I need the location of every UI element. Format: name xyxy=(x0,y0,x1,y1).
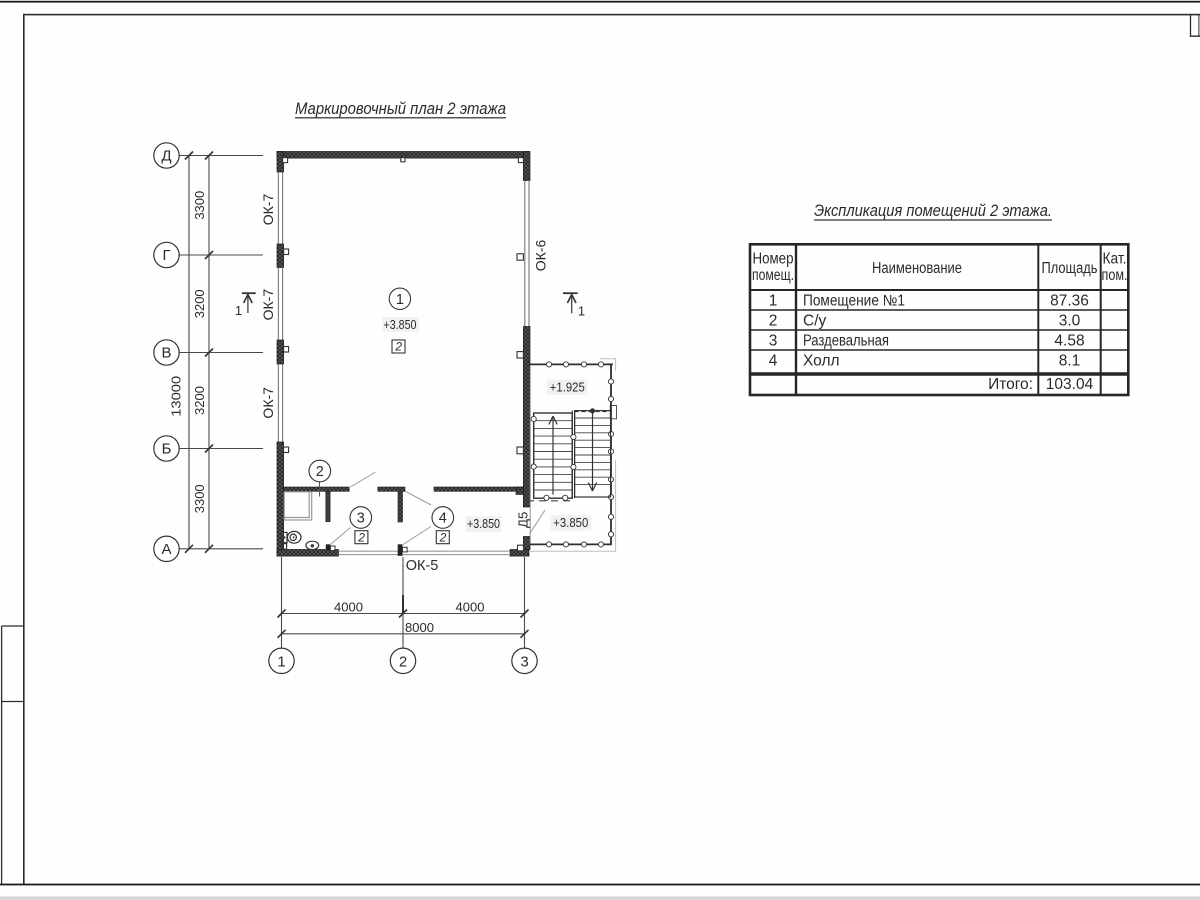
svg-text:ОК-7: ОК-7 xyxy=(260,387,276,419)
svg-text:Маркировочный план 2 этажа: Маркировочный план 2 этажа xyxy=(295,99,506,118)
svg-text:4000: 4000 xyxy=(334,600,363,615)
svg-text:8000: 8000 xyxy=(405,620,434,635)
svg-text:2: 2 xyxy=(769,313,778,330)
svg-text:ОК-7: ОК-7 xyxy=(260,194,276,226)
svg-text:4.58: 4.58 xyxy=(1054,333,1084,350)
svg-text:13000: 13000 xyxy=(169,376,184,417)
svg-text:4: 4 xyxy=(439,511,447,527)
svg-text:8.1: 8.1 xyxy=(1059,353,1081,370)
svg-text:1: 1 xyxy=(769,293,778,310)
svg-text:ОК-7: ОК-7 xyxy=(260,289,276,321)
svg-text:Д: Д xyxy=(161,148,171,165)
svg-text:помещ.: помещ. xyxy=(752,267,794,284)
svg-text:+3.850: +3.850 xyxy=(384,317,417,332)
svg-text:Кат.: Кат. xyxy=(1103,251,1127,268)
svg-text:2: 2 xyxy=(439,530,447,544)
svg-text:+1.925: +1.925 xyxy=(550,380,585,395)
svg-text:4000: 4000 xyxy=(456,600,485,615)
svg-text:3200: 3200 xyxy=(192,386,207,415)
svg-text:ОК-6: ОК-6 xyxy=(532,240,548,272)
svg-text:пом.: пом. xyxy=(1102,267,1128,284)
svg-text:3200: 3200 xyxy=(192,289,207,318)
svg-text:Б: Б xyxy=(162,441,172,458)
svg-text:103.04: 103.04 xyxy=(1046,376,1094,393)
svg-text:87.36: 87.36 xyxy=(1050,293,1089,310)
svg-text:Площадь: Площадь xyxy=(1042,260,1098,277)
svg-text:3: 3 xyxy=(769,333,778,350)
svg-text:1: 1 xyxy=(578,304,585,319)
svg-text:Г: Г xyxy=(162,247,170,264)
svg-text:4: 4 xyxy=(769,353,778,370)
svg-text:1: 1 xyxy=(235,303,242,318)
svg-text:Помещение №1: Помещение №1 xyxy=(803,293,905,310)
svg-text:Итого:: Итого: xyxy=(988,376,1033,393)
svg-text:3300: 3300 xyxy=(192,191,207,220)
svg-text:ОК-5: ОК-5 xyxy=(406,558,439,574)
svg-text:2: 2 xyxy=(394,340,402,354)
svg-text:3: 3 xyxy=(520,653,528,670)
svg-text:+3.850: +3.850 xyxy=(467,516,500,531)
svg-text:2: 2 xyxy=(316,464,324,480)
svg-text:Д5: Д5 xyxy=(516,512,531,528)
svg-text:Экспликация помещений 2 этажа.: Экспликация помещений 2 этажа. xyxy=(814,201,1052,220)
svg-text:Раздевальная: Раздевальная xyxy=(803,333,889,350)
svg-text:2: 2 xyxy=(399,653,407,670)
svg-text:Холл: Холл xyxy=(803,353,840,370)
svg-text:+3.850: +3.850 xyxy=(553,515,588,530)
svg-text:Номер: Номер xyxy=(753,251,794,268)
svg-text:1: 1 xyxy=(396,292,404,308)
svg-text:1: 1 xyxy=(277,653,285,670)
svg-text:С/у: С/у xyxy=(803,313,827,330)
svg-text:2: 2 xyxy=(357,530,365,544)
svg-text:3.0: 3.0 xyxy=(1059,313,1081,330)
svg-text:Наименование: Наименование xyxy=(872,260,962,277)
svg-text:А: А xyxy=(161,541,171,558)
svg-text:В: В xyxy=(161,345,171,362)
svg-text:3: 3 xyxy=(357,511,365,527)
svg-text:3300: 3300 xyxy=(192,484,207,513)
